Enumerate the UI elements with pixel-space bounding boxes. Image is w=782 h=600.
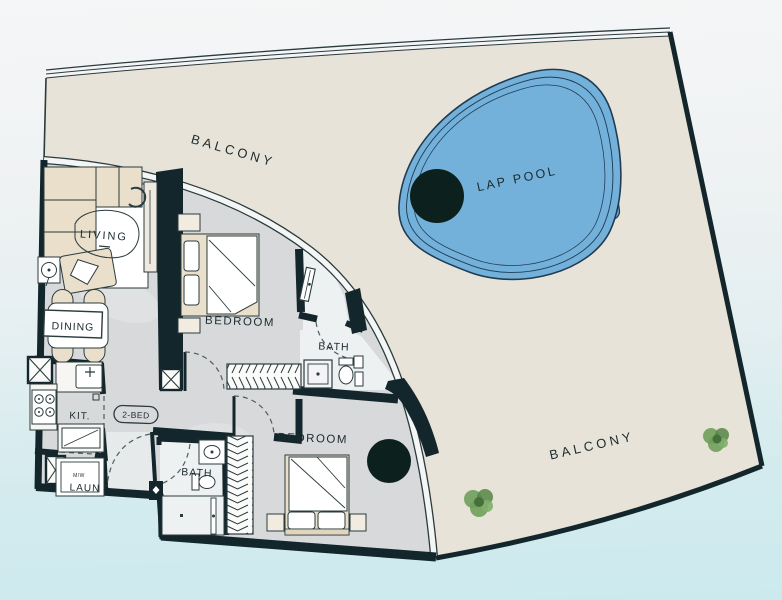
round-table-icon — [367, 439, 411, 483]
laundry: M/W LAUN — [56, 458, 104, 496]
bath1-label: BATH — [318, 340, 350, 353]
wardrobe — [227, 436, 253, 534]
floor-plan-canvas: LAP POOL — [0, 0, 782, 600]
dining-label: DINING — [51, 320, 94, 333]
bed-footboard — [285, 529, 349, 535]
pillow — [288, 512, 315, 529]
pillow — [184, 275, 199, 305]
unit-type-label: 2-BED — [122, 410, 150, 421]
vanity — [355, 372, 363, 386]
nightstand — [350, 514, 366, 531]
shaft-icon — [161, 369, 181, 390]
nightstand — [178, 214, 200, 231]
wardrobe — [227, 364, 301, 389]
floor-plan-page: LAP POOL — [0, 0, 782, 600]
stove-icon — [32, 390, 56, 424]
kitchen-label: KIT. — [69, 411, 91, 423]
shower-icon — [162, 496, 224, 535]
shower-icon — [304, 360, 332, 388]
kitchen-base-cabinet — [58, 424, 104, 452]
pillow — [318, 512, 345, 529]
vanity — [354, 356, 363, 368]
wall-living-bedroom1 — [156, 168, 183, 390]
vanity-sink-icon — [199, 440, 225, 464]
toilet-icon — [339, 358, 353, 384]
nightstand — [178, 318, 200, 333]
shaft-icon — [28, 357, 52, 383]
bedroom1-label: BEDROOM — [205, 315, 275, 329]
laundry-machine-label: M/W — [73, 473, 85, 479]
living-room: LIVING — [38, 167, 157, 294]
nightstand — [267, 514, 284, 531]
bath2-label: BATH — [181, 466, 213, 480]
pool-planter-icon — [410, 169, 464, 223]
laundry-label: LAUN — [69, 482, 100, 494]
pillow — [184, 241, 199, 271]
side-table-lamp — [38, 257, 60, 286]
bedroom2-label: BEDROOM — [278, 432, 348, 446]
